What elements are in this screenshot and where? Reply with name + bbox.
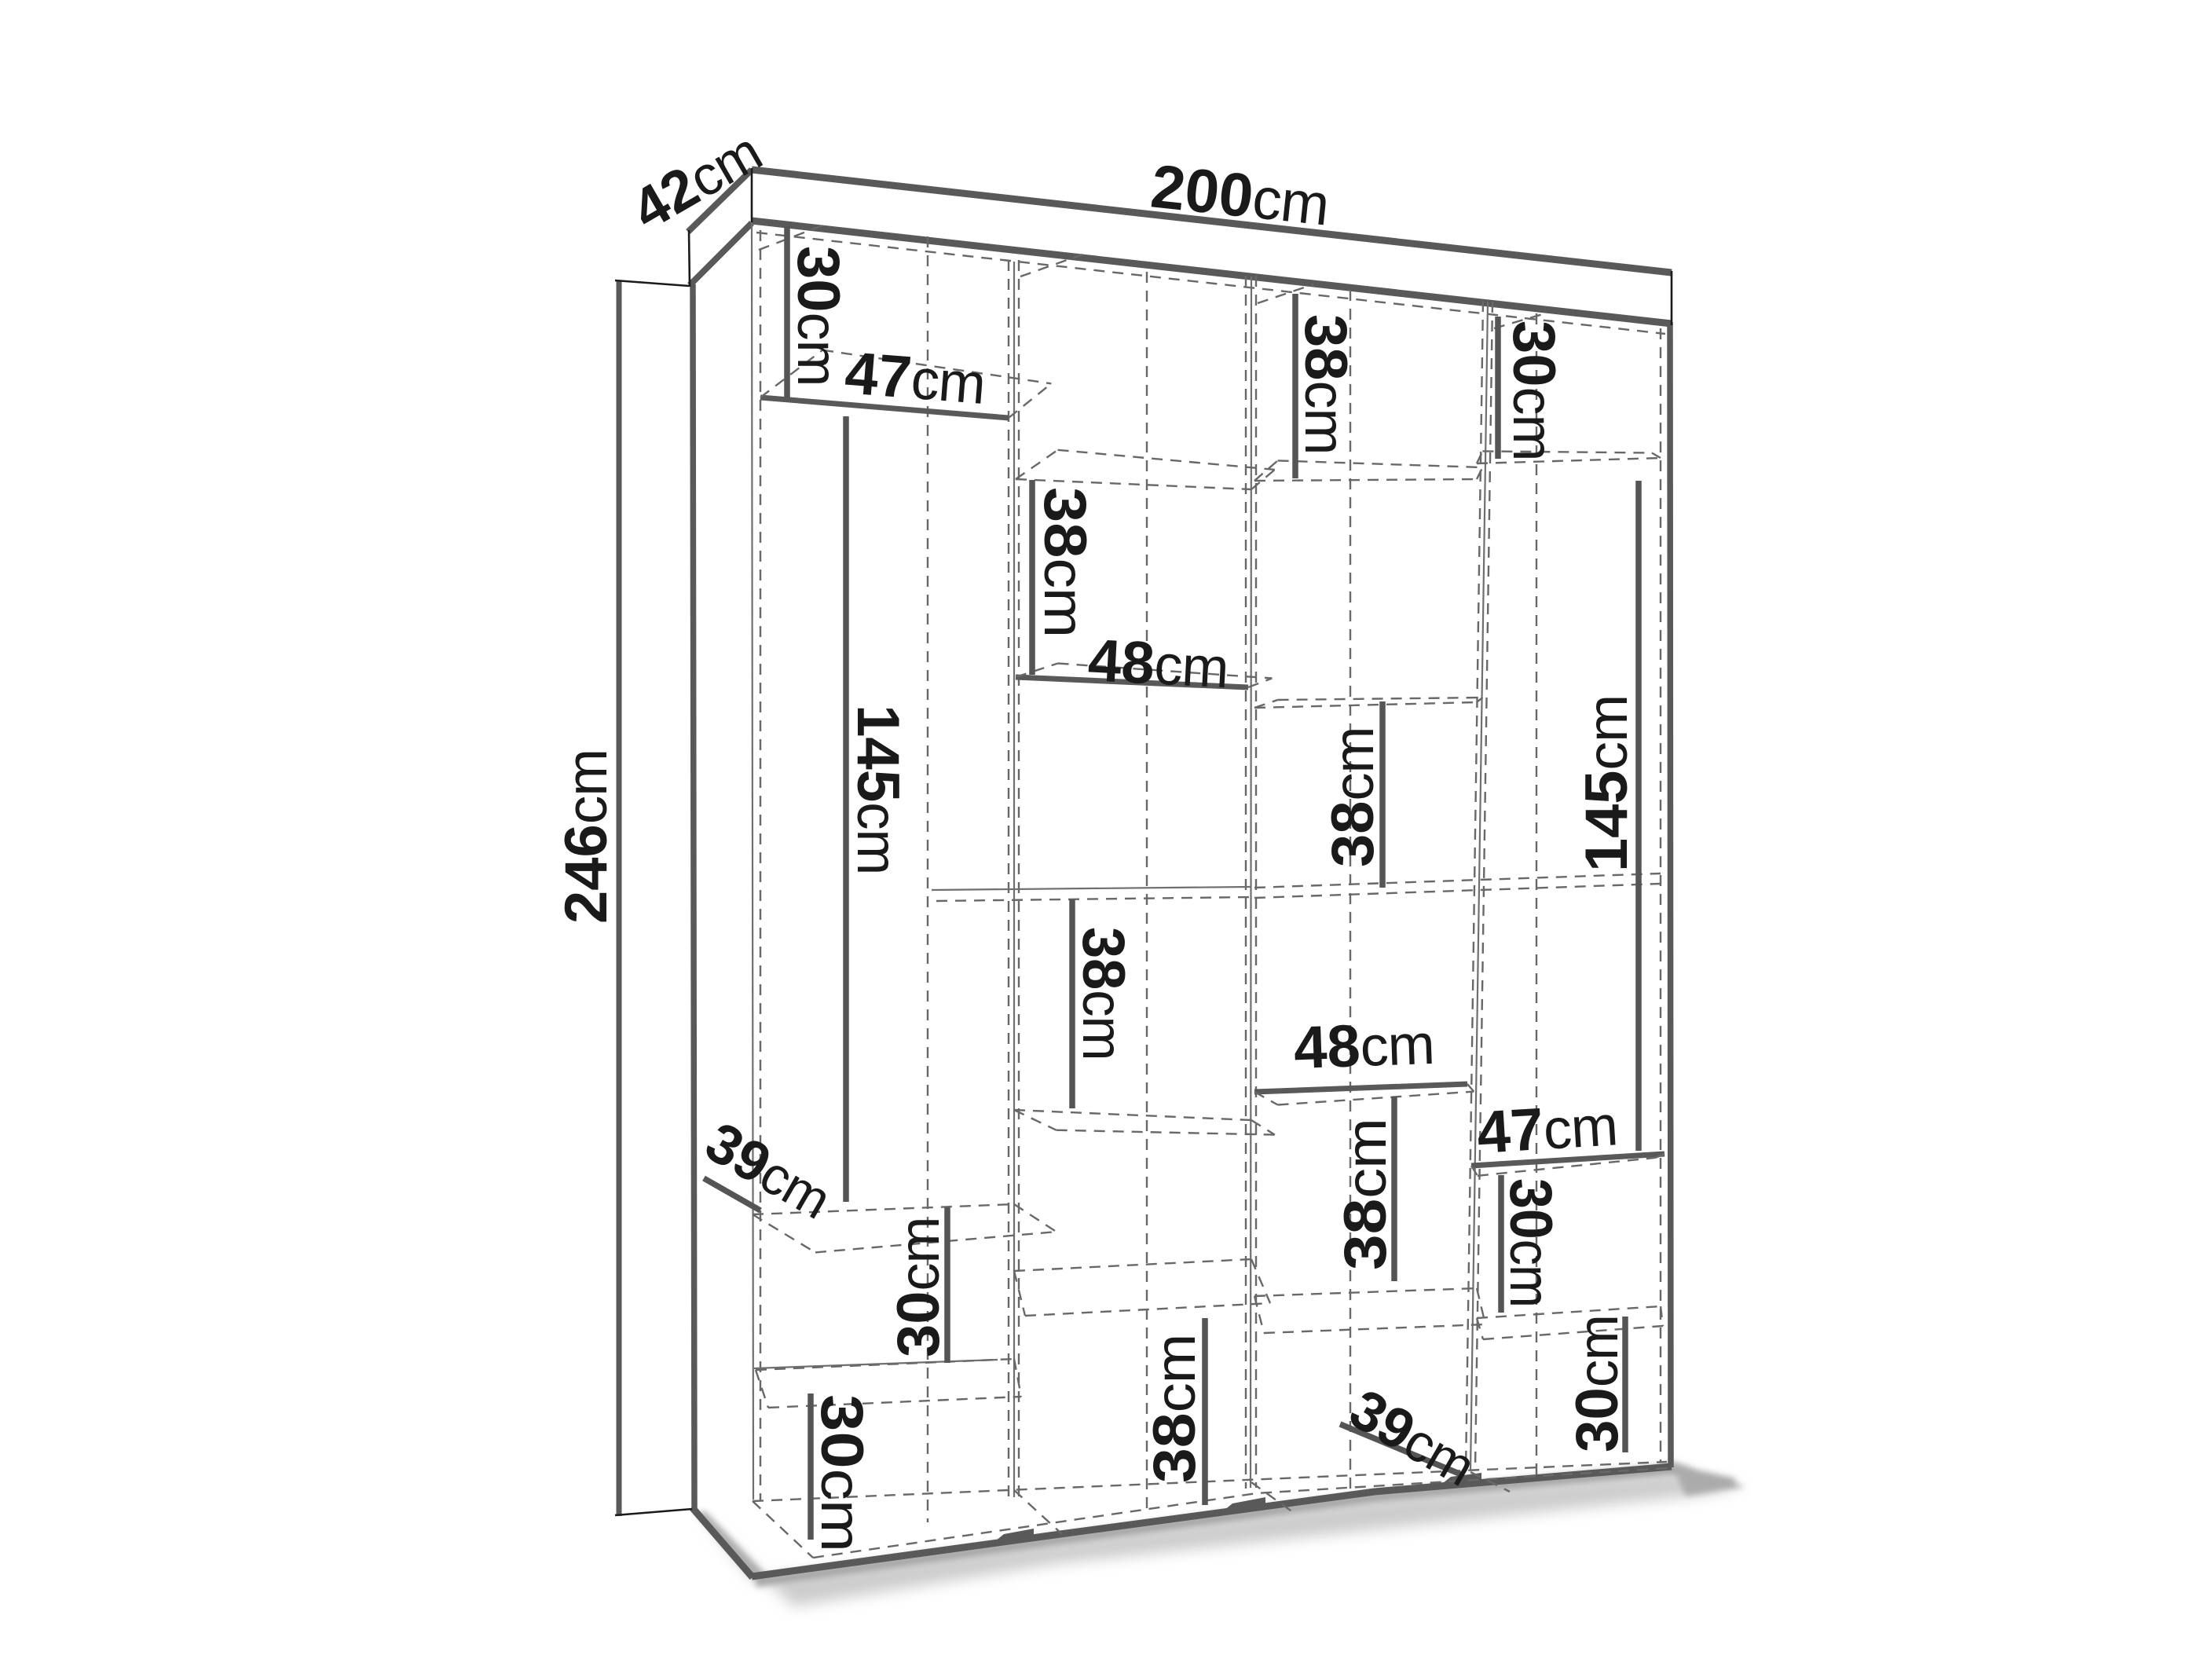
svg-text:38cm: 38cm — [1032, 487, 1099, 637]
svg-text:48cm: 48cm — [1086, 627, 1230, 701]
svg-text:38cm: 38cm — [1320, 727, 1386, 867]
svg-text:39cm: 39cm — [1339, 1378, 1485, 1499]
svg-text:39cm: 39cm — [695, 1111, 841, 1232]
svg-text:246cm: 246cm — [553, 749, 620, 924]
svg-text:30cm: 30cm — [1497, 1178, 1563, 1307]
svg-text:200cm: 200cm — [1148, 151, 1332, 238]
svg-text:38cm: 38cm — [1071, 927, 1137, 1060]
svg-text:145cm: 145cm — [1574, 695, 1640, 872]
svg-text:38cm: 38cm — [1141, 1335, 1207, 1483]
svg-text:30cm: 30cm — [1563, 1315, 1630, 1452]
svg-text:47cm: 47cm — [843, 339, 988, 417]
svg-text:30cm: 30cm — [808, 1394, 875, 1551]
svg-text:47cm: 47cm — [1475, 1091, 1619, 1166]
svg-text:30cm: 30cm — [785, 246, 851, 386]
svg-text:48cm: 48cm — [1293, 1010, 1435, 1082]
svg-text:38cm: 38cm — [1331, 1119, 1399, 1270]
svg-text:145cm: 145cm — [845, 705, 912, 874]
svg-text:30cm: 30cm — [885, 1217, 952, 1357]
svg-text:38cm: 38cm — [1292, 314, 1359, 455]
svg-text:30cm: 30cm — [1500, 320, 1567, 461]
